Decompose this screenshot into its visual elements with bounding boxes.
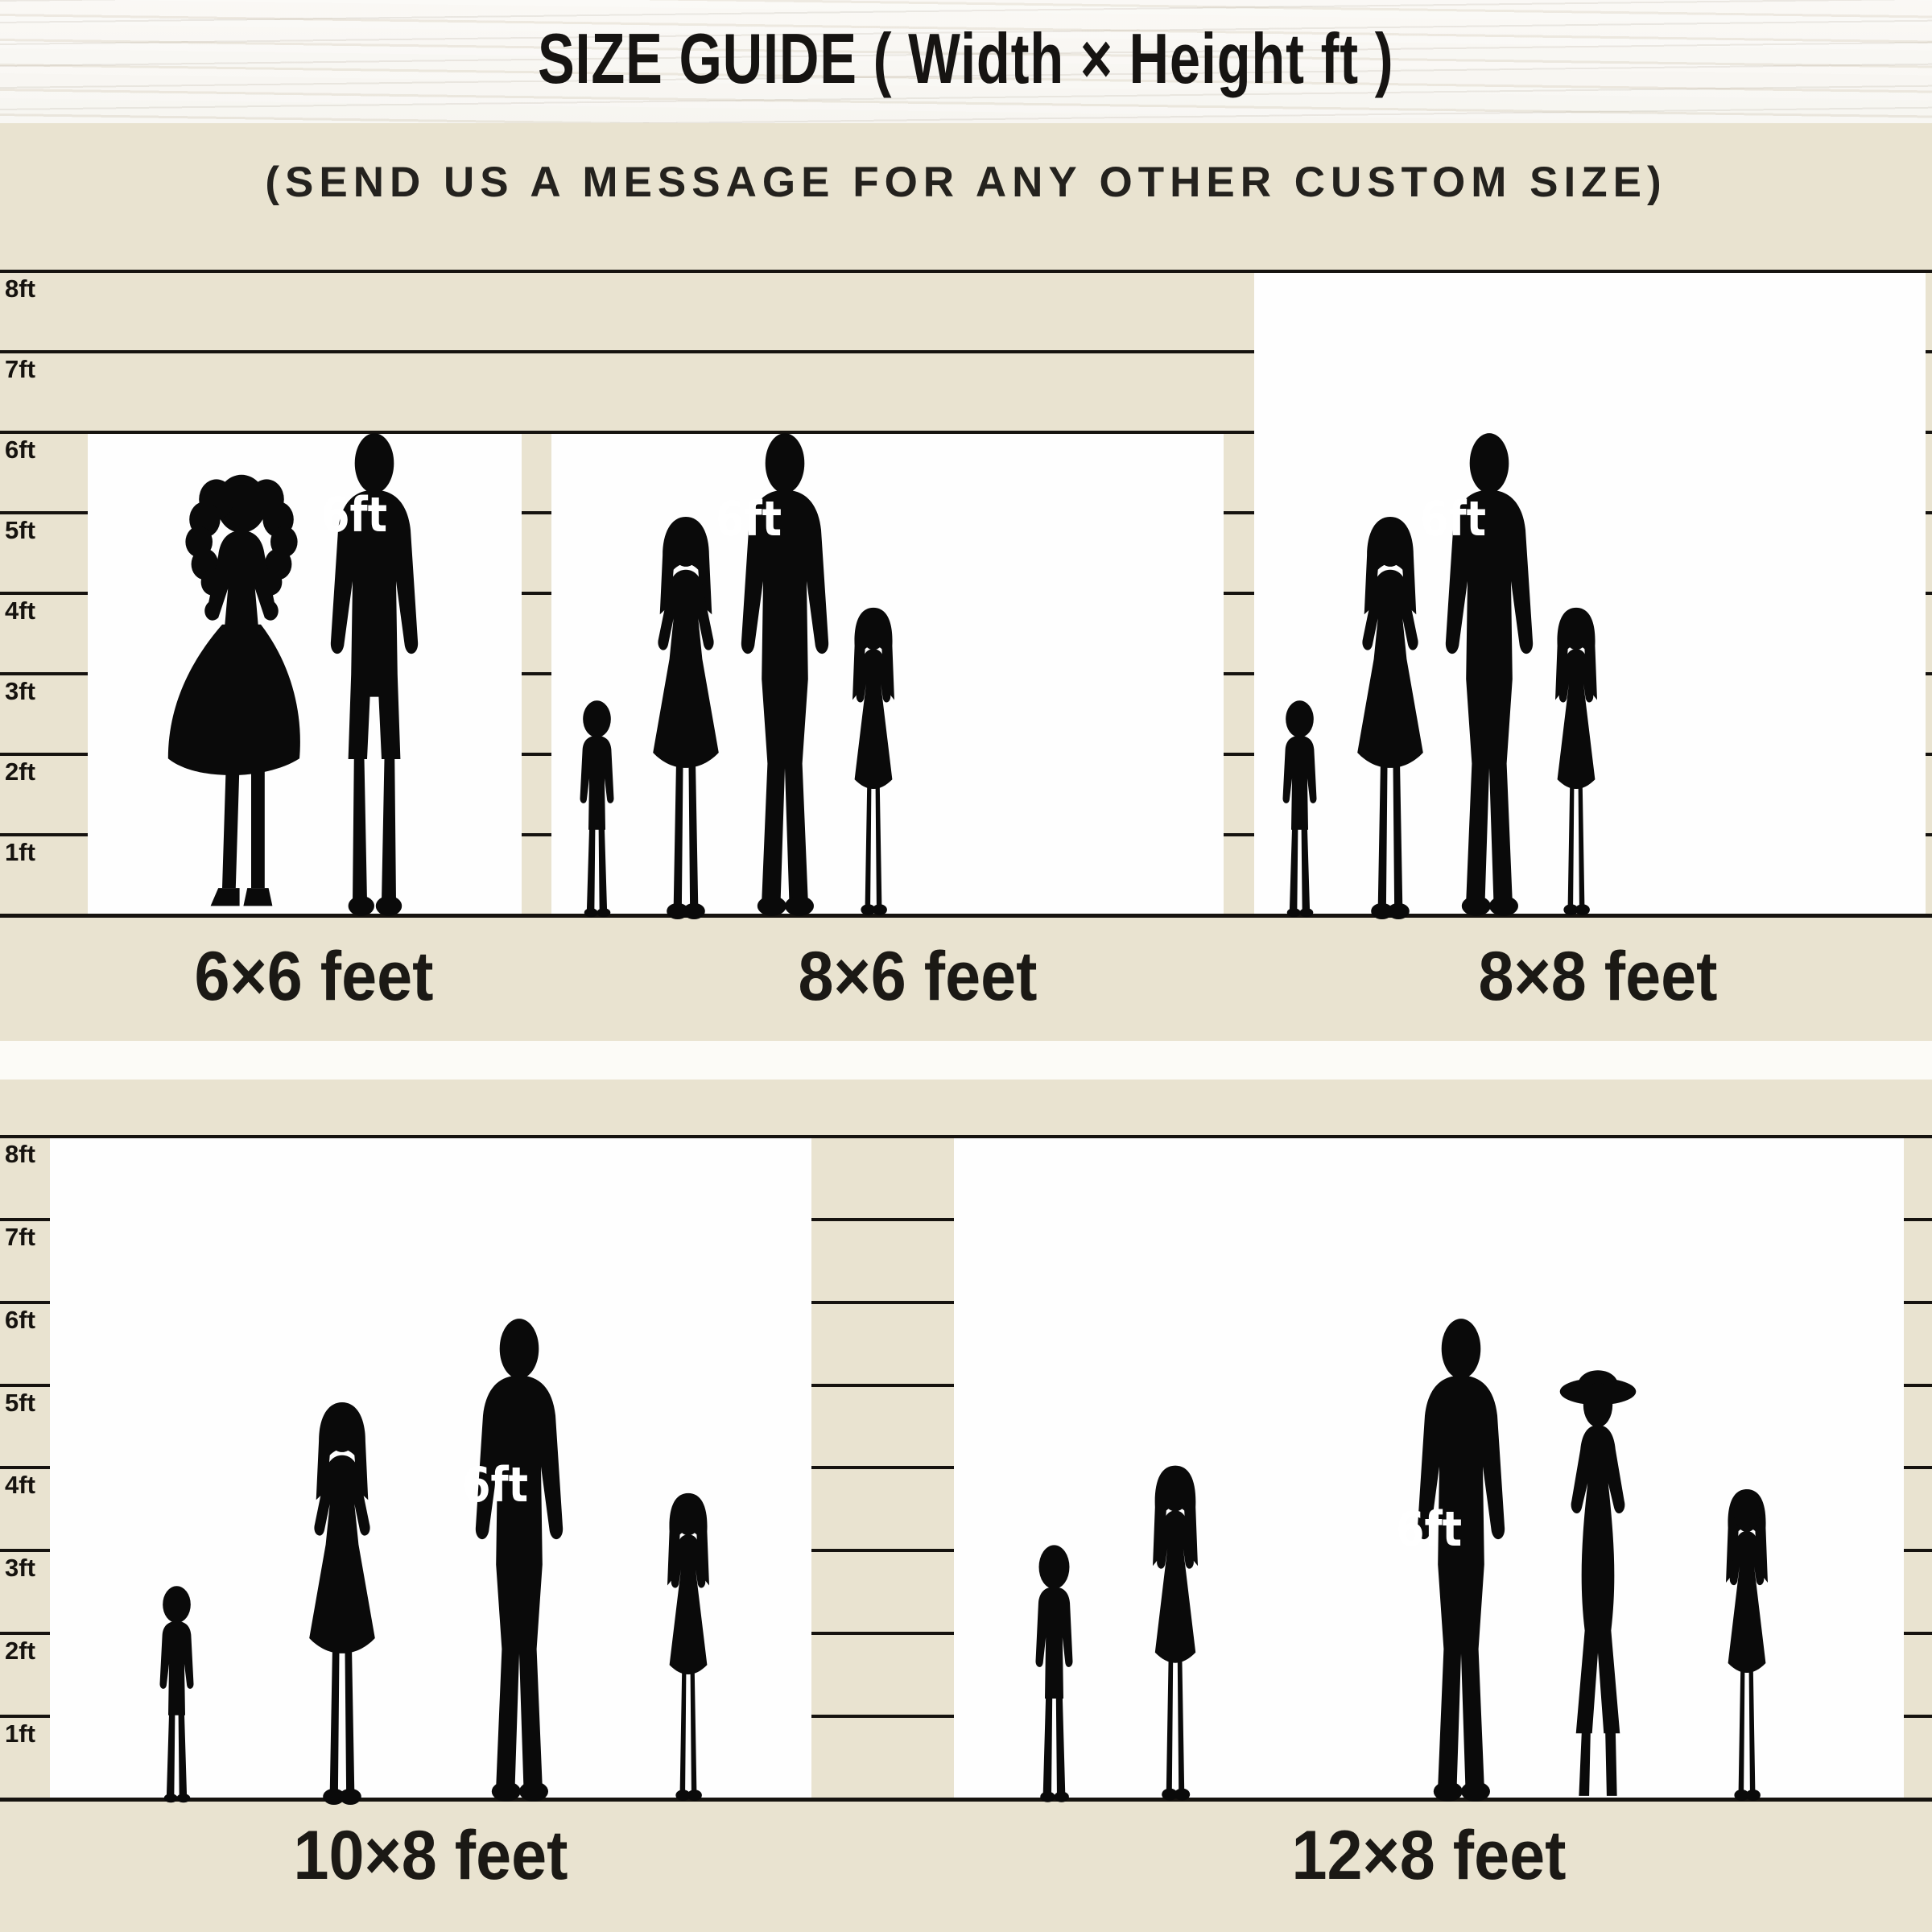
ruler-line-1ft-row2 xyxy=(0,1715,50,1718)
ruler-line-2ft xyxy=(0,753,88,756)
ruler-line-2ft-row2 xyxy=(0,1632,50,1635)
ruler-line-2ft-gap2 xyxy=(1224,753,1254,756)
size-caption-8x6: 8×6 feet xyxy=(788,942,1048,1011)
ruler-line-5ft xyxy=(0,511,88,514)
ruler-label-4ft: 4ft xyxy=(5,598,35,623)
ruler-line-1ft xyxy=(0,833,88,836)
girl-silhouette-icon xyxy=(821,601,926,919)
ruler-line-3ft-gap1 xyxy=(522,672,551,675)
ruler-label-6ft: 6ft xyxy=(5,437,35,462)
size-caption-6x6: 6×6 feet xyxy=(184,942,444,1011)
ruler-line-3ft-row2-gap xyxy=(811,1549,954,1552)
ruler-line-6ft-row2 xyxy=(0,1301,50,1304)
boy-silhouette-icon xyxy=(1008,1539,1100,1805)
size-caption-12x8: 12×8 feet xyxy=(1280,1821,1579,1890)
ruler-line-7ft xyxy=(0,350,1254,353)
ruler-label-5ft-row2: 5ft xyxy=(5,1390,35,1415)
ruler-label-7ft: 7ft xyxy=(5,357,35,382)
reference-height-label: 6ft xyxy=(321,491,387,539)
ruler-line-1ft-row2-gap xyxy=(811,1715,954,1718)
ruler-line-5ft-gap1 xyxy=(522,511,551,514)
man-silhouette-icon xyxy=(447,1315,592,1805)
ruler-line-4ft-right xyxy=(1926,592,1932,595)
ruler-line-7ft-row2 xyxy=(0,1218,50,1221)
page-title: SIZE GUIDE ( Width × Height ft ) xyxy=(0,18,1932,100)
ruler-line-3ft-right xyxy=(1926,672,1932,675)
ruler-label-1ft-row2: 1ft xyxy=(5,1721,35,1746)
reference-height-label: 6ft xyxy=(1396,1505,1462,1554)
ruler-line-5ft-gap2 xyxy=(1224,511,1254,514)
ruler-label-8ft-row2: 8ft xyxy=(5,1141,35,1166)
section-divider xyxy=(0,1041,1932,1080)
ruler-line-2ft-row2-right xyxy=(1904,1632,1932,1635)
ruler-label-8ft: 8ft xyxy=(5,276,35,301)
ruler-line-6ft-row2-right xyxy=(1904,1301,1932,1304)
man-silhouette-icon xyxy=(1389,1315,1534,1805)
ruler-line-8ft-row2 xyxy=(0,1135,1932,1138)
girl-silhouette-icon xyxy=(636,1487,741,1805)
ruler-line-2ft-gap1 xyxy=(522,753,551,756)
ruler-line-1ft-gap1 xyxy=(522,833,551,836)
reference-height-label: 6ft xyxy=(716,495,782,543)
ruler-label-7ft-row2: 7ft xyxy=(5,1224,35,1249)
reference-height-label: 6ft xyxy=(1420,495,1486,543)
ruler-label-5ft: 5ft xyxy=(5,518,35,543)
custom-size-note: (SEND US A MESSAGE FOR ANY OTHER CUSTOM … xyxy=(0,158,1932,207)
ruler-line-7ft-row2-right xyxy=(1904,1218,1932,1221)
girl-silhouette-icon xyxy=(1524,601,1629,919)
ruler-line-8ft xyxy=(0,270,1932,273)
ruler-line-6ft-right xyxy=(1926,431,1932,434)
ruler-line-3ft xyxy=(0,672,88,675)
ruler-line-7ft-row2-gap xyxy=(811,1218,954,1221)
ruler-label-1ft: 1ft xyxy=(5,840,35,865)
ruler-line-4ft xyxy=(0,592,88,595)
size-caption-8x8: 8×8 feet xyxy=(1468,942,1728,1011)
size-caption-10x8: 10×8 feet xyxy=(282,1821,580,1890)
ruler-line-1ft-right xyxy=(1926,833,1932,836)
ruler-label-2ft: 2ft xyxy=(5,759,35,784)
girl-silhouette-icon xyxy=(1119,1459,1232,1805)
ruler-line-3ft-gap2 xyxy=(1224,672,1254,675)
ruler-line-7ft-right xyxy=(1926,350,1932,353)
ruler-line-3ft-row2 xyxy=(0,1549,50,1552)
ruler-line-3ft-row2-right xyxy=(1904,1549,1932,1552)
ruler-line-4ft-row2 xyxy=(0,1466,50,1469)
ruler-line-6ft xyxy=(0,431,1254,434)
boy-silhouette-icon xyxy=(134,1581,219,1805)
size-guide-infographic: SIZE GUIDE ( Width × Height ft ) (SEND U… xyxy=(0,0,1932,1932)
woman-silhouette-icon xyxy=(274,1398,411,1805)
ruler-line-5ft-right xyxy=(1926,511,1932,514)
girl-silhouette-icon xyxy=(1695,1483,1799,1805)
ruler-line-4ft-row2-gap xyxy=(811,1466,954,1469)
reference-height-label: 6ft xyxy=(462,1461,528,1509)
woman-hat-silhouette-icon xyxy=(1517,1358,1678,1805)
ruler-label-2ft-row2: 2ft xyxy=(5,1638,35,1663)
ruler-line-2ft-row2-gap xyxy=(811,1632,954,1635)
ruler-line-5ft-row2-gap xyxy=(811,1384,954,1387)
ruler-line-4ft-gap1 xyxy=(522,592,551,595)
ruler-line-2ft-right xyxy=(1926,753,1932,756)
ruler-label-6ft-row2: 6ft xyxy=(5,1307,35,1332)
ruler-line-4ft-row2-right xyxy=(1904,1466,1932,1469)
ruler-label-4ft-row2: 4ft xyxy=(5,1472,35,1497)
ruler-line-5ft-row2 xyxy=(0,1384,50,1387)
ruler-label-3ft: 3ft xyxy=(5,679,35,704)
ruler-line-4ft-gap2 xyxy=(1224,592,1254,595)
ruler-line-1ft-gap2 xyxy=(1224,833,1254,836)
ruler-label-3ft-row2: 3ft xyxy=(5,1555,35,1580)
ruler-line-5ft-row2-right xyxy=(1904,1384,1932,1387)
ruler-line-1ft-row2-right xyxy=(1904,1715,1932,1718)
ruler-line-6ft-row2-gap xyxy=(811,1301,954,1304)
